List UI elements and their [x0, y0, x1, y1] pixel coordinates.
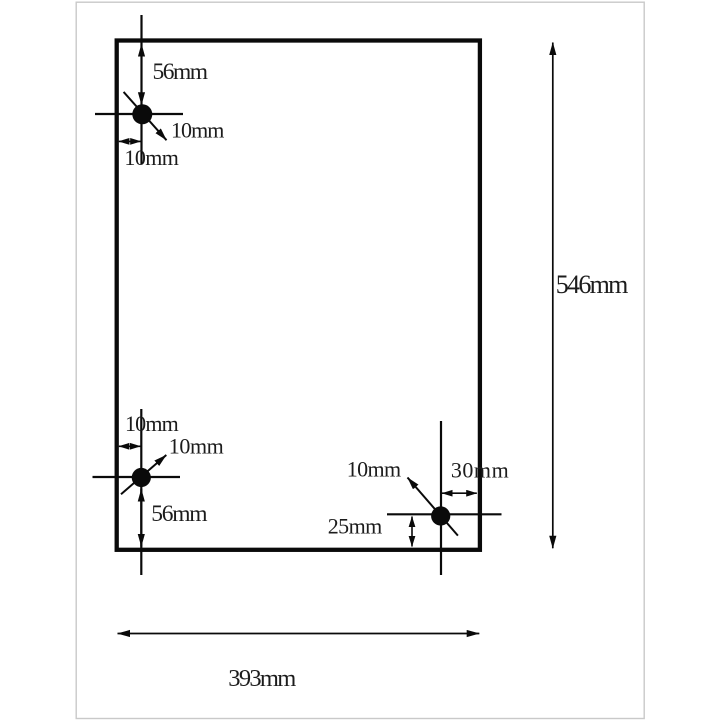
svg-text:56mm: 56mm — [153, 59, 209, 85]
svg-text:10mm: 10mm — [125, 411, 179, 436]
svg-text:10mm: 10mm — [171, 118, 224, 143]
svg-text:546mm: 546mm — [556, 270, 629, 299]
svg-text:56mm: 56mm — [151, 501, 207, 527]
svg-text:30mm: 30mm — [451, 458, 509, 483]
svg-text:25mm: 25mm — [328, 514, 382, 539]
svg-text:10mm: 10mm — [124, 145, 178, 170]
svg-text:10mm: 10mm — [347, 457, 401, 482]
svg-text:10mm: 10mm — [169, 434, 224, 459]
svg-text:393mm: 393mm — [228, 665, 296, 692]
